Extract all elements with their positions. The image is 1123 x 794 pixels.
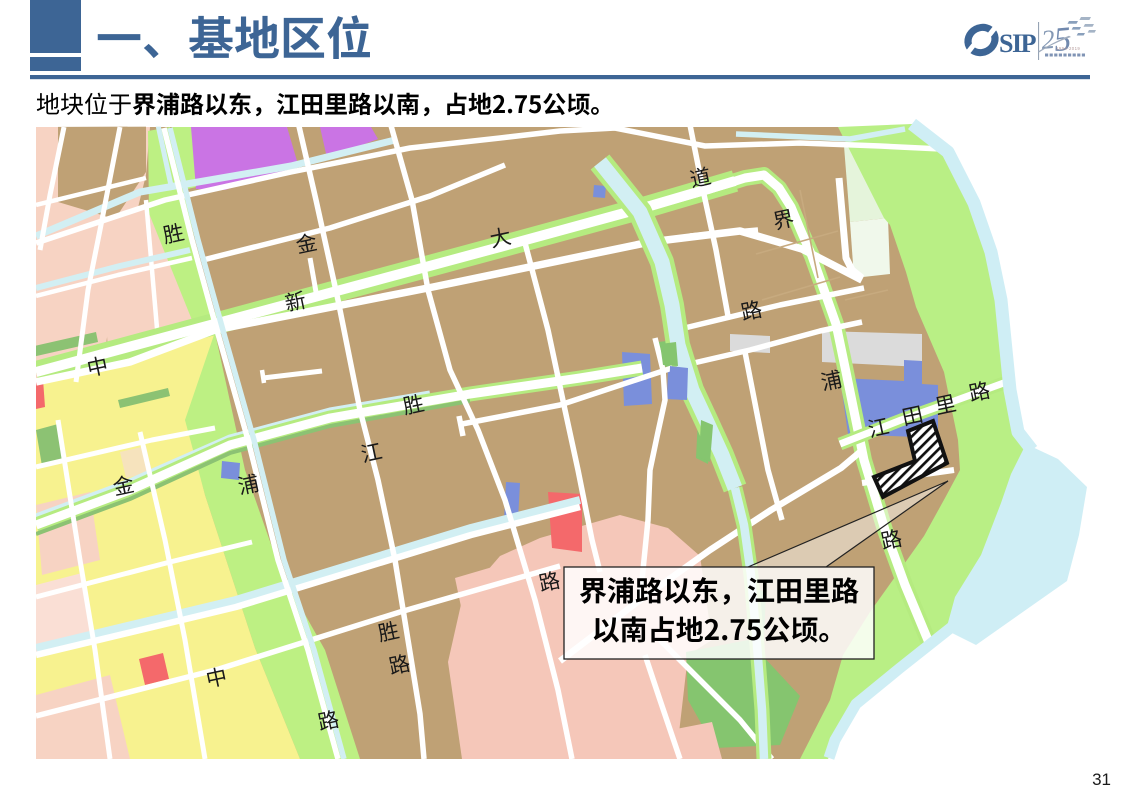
svg-text:31: 31 [1092,770,1111,789]
svg-text:SIP: SIP [999,29,1037,58]
svg-text:1994-2019: 1994-2019 [1056,46,1080,51]
